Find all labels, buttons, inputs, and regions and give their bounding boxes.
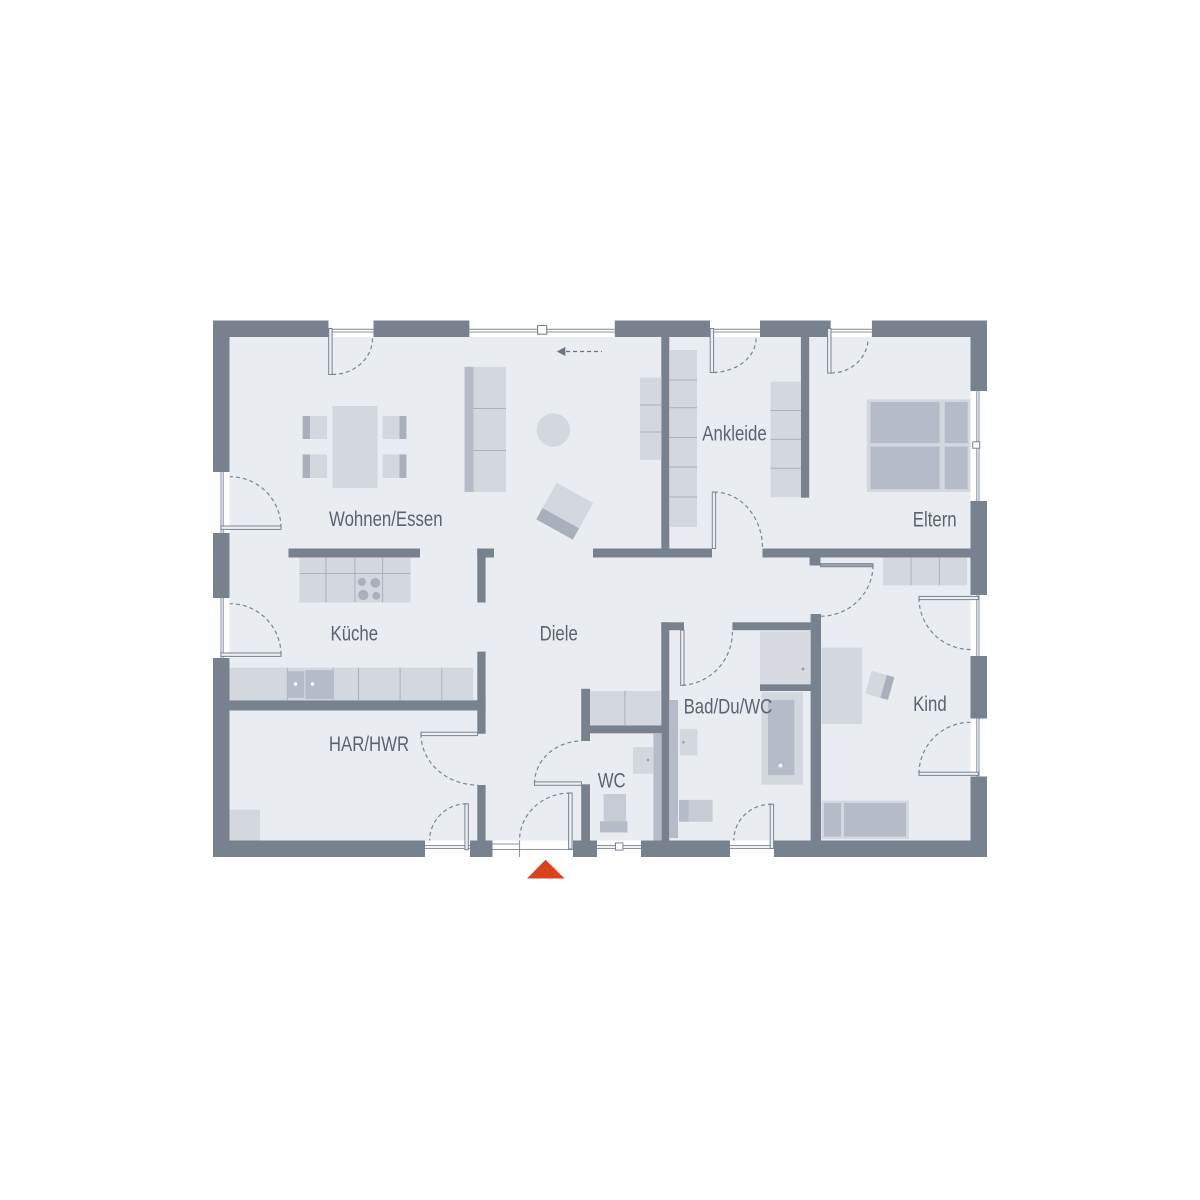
svg-text:Diele: Diele	[540, 623, 578, 646]
svg-text:Wohnen/Essen: Wohnen/Essen	[329, 508, 443, 531]
svg-text:Bad/Du/WC: Bad/Du/WC	[684, 696, 773, 719]
svg-text:Küche: Küche	[331, 623, 379, 646]
svg-text:WC: WC	[598, 770, 626, 793]
svg-text:Eltern: Eltern	[913, 509, 957, 532]
svg-text:Kind: Kind	[913, 693, 947, 716]
svg-text:HAR/HWR: HAR/HWR	[329, 734, 409, 757]
svg-text:Ankleide: Ankleide	[702, 423, 766, 446]
